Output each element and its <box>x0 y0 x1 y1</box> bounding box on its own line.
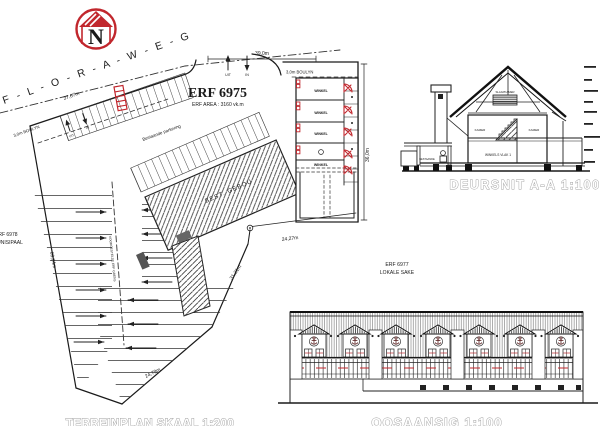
neighbor-erf-name: MUNISIPAAL <box>0 240 23 246</box>
shop-unit-label: WINKEL <box>314 89 327 93</box>
elevation-drawing: ERF 6977 LOKALE SAKE <box>278 262 598 426</box>
site-plan-caption: TERREINPLAN SKAAL 1:200 <box>66 418 235 426</box>
north-letter: N <box>88 24 104 49</box>
erf-area-label: ERF AREA : 3160 vk.m <box>192 102 244 108</box>
plinth-vents <box>420 385 581 390</box>
dim-hall-width: 24,27m <box>282 235 299 243</box>
material-callout-notes <box>584 66 600 163</box>
building-line-top-label: 3,0m BOULYN <box>286 70 313 75</box>
north-arrow-icon: N <box>77 10 116 50</box>
section-caption: DEURSNIT A-A 1:100 <box>449 178 600 192</box>
erf-number-title: ERF 6975 <box>188 86 247 101</box>
south-parking-lot <box>98 280 240 406</box>
building-line-left-label: 3,0m BOULYN <box>13 124 40 138</box>
elevation-erf-number: ERF 6977 <box>385 262 408 268</box>
shop-units-block: WINKEL WINKEL WINKEL WINKEL <box>296 78 358 222</box>
architectural-drawing-sheet: N F - L - O - R - A - W - E - G VOORGEST… <box>0 0 600 426</box>
dim-bottom-right: 31,21m <box>229 264 243 281</box>
shop-unit-label: WINKEL <box>314 111 327 115</box>
porch-label: BESTAANDE <box>419 157 435 161</box>
room-right-label: KAMER <box>529 128 541 132</box>
entrance-arrows-top: UIT IN <box>225 55 249 77</box>
sheet-canvas: N F - L - O - R - A - W - E - G VOORGEST… <box>0 0 600 426</box>
ground-floor-label: WINKELS VLAK 1 <box>485 153 511 157</box>
dim-right-side: 36,0m <box>365 148 371 162</box>
elevation-land-use-label: LOKALE SAKE <box>380 270 415 276</box>
dim-street-edge: 37,67m <box>63 91 81 102</box>
elevation-caption: OOSAANSIG 1:100 <box>371 415 502 426</box>
shop-unit-label: WINKEL <box>314 163 329 167</box>
shop-unit-label: WINKEL <box>314 132 327 136</box>
dim-frontage-top: 39,0m <box>255 51 269 57</box>
existing-parking-note: Bestaande parkering <box>142 123 182 142</box>
attic-room-label: SLAAPKAMER <box>496 90 515 94</box>
section-drawing: BESTAANDE SLAAPKAMER KAMER KAMER WINKELS… <box>401 66 600 192</box>
entry-label: IN <box>245 73 249 77</box>
exit-label: UIT <box>225 73 232 77</box>
neighbor-erf-number: ERF 6978 <box>0 232 18 238</box>
room-left-label: KAMER <box>475 128 487 132</box>
